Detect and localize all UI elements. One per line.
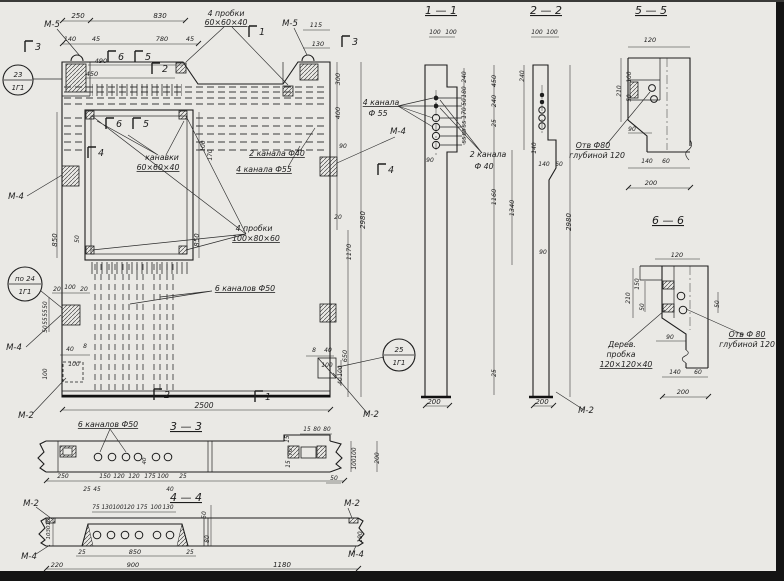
- section-flag-number: 3: [352, 37, 358, 48]
- section-title-4-4: 4 — 4: [170, 491, 202, 504]
- dim-label: 25: [83, 487, 91, 493]
- dim-label: 100: [352, 447, 358, 458]
- mark-ref-label: М-2: [23, 499, 39, 509]
- dim-label: 100: [201, 140, 207, 151]
- dim-label: 100: [352, 458, 358, 469]
- annotation: 60×60×40: [205, 18, 248, 27]
- section-flag-number: 6: [116, 119, 122, 130]
- dim-label: 25: [491, 369, 498, 377]
- annotation: пробка: [606, 350, 635, 359]
- dim-label: 650: [341, 350, 349, 362]
- mark-ref-label: М-2: [344, 499, 360, 509]
- annotation: 6 каналов Ф50: [78, 420, 138, 429]
- dim-label: 120: [113, 473, 125, 480]
- section-flag-number: 2: [164, 390, 170, 401]
- dim-label: 900: [127, 561, 139, 569]
- rib-band: [88, 262, 190, 274]
- mark-ref-label: М-2: [18, 411, 34, 421]
- dim-label: 100: [43, 368, 49, 379]
- dim-label: 40: [166, 487, 174, 493]
- dim-label: 80: [204, 535, 211, 543]
- dim-label: 100: [112, 505, 123, 511]
- mark-ref-label: М-4: [21, 552, 37, 562]
- dim-label: 100: [429, 29, 441, 36]
- dim-label: 1180: [273, 561, 291, 569]
- dim-label: 140: [538, 161, 550, 168]
- dim-label: 100: [338, 365, 344, 376]
- dim-label: 50: [74, 235, 81, 243]
- section-flag-number: 1: [265, 392, 271, 403]
- dim-label: 90: [539, 249, 547, 256]
- annotation: Ф 55: [368, 109, 387, 118]
- dim-label: 45: [186, 35, 194, 43]
- annotation: 2 канала: [470, 150, 507, 159]
- dim-label: 50: [462, 98, 468, 106]
- dim-label: 20: [53, 286, 61, 293]
- mark-top: 23: [14, 71, 23, 79]
- dim-label: 55: [43, 309, 49, 317]
- dim-label: 2500: [194, 401, 213, 410]
- dim-label: 240: [519, 70, 526, 82]
- mark-ref-label: М-2: [578, 406, 594, 416]
- dim-label: 170: [461, 107, 468, 119]
- dim-label: 25: [491, 119, 498, 127]
- dim-label: 10: [46, 532, 52, 539]
- section-flag-number: 4: [98, 148, 104, 159]
- dim-label: 150: [634, 278, 641, 290]
- mark-ref-label: М-4: [348, 550, 364, 560]
- dim-label: 90: [426, 157, 434, 164]
- dim-label: 780: [156, 35, 168, 43]
- dim-label: 100: [150, 505, 161, 511]
- dim-label: 150: [99, 473, 111, 480]
- dim-label: 60: [555, 161, 563, 168]
- dim-label: 40: [66, 346, 74, 353]
- dim-label: 200: [677, 388, 689, 396]
- dim-label: 450: [86, 70, 98, 78]
- dim-label: 210: [625, 292, 632, 304]
- annotation: 6 каналов Ф50: [215, 284, 275, 293]
- dim-label: 250: [57, 473, 69, 480]
- section-title-5-5: 5 — 5: [635, 4, 667, 17]
- dim-label: 180: [461, 86, 468, 98]
- annotation: Дерев.: [607, 340, 636, 349]
- dim-label: 90: [666, 334, 674, 341]
- dim-label: 850: [51, 233, 59, 247]
- dim-label: 200: [645, 179, 657, 187]
- rib-band: [92, 84, 182, 96]
- annotation: глубиной 120: [719, 340, 775, 349]
- dim-label: 8: [83, 343, 87, 350]
- mark-ref-label: М-4: [390, 127, 406, 137]
- annotation: глубиной 120: [569, 151, 625, 160]
- mark-top: по 24: [15, 275, 35, 283]
- dim-label: 15: [303, 427, 311, 433]
- dim-label: 40: [338, 377, 344, 385]
- dim-label: 100: [445, 29, 457, 36]
- mark-bottom: 1Г1: [12, 84, 25, 92]
- dim-label: 15: [286, 460, 292, 468]
- mark-bottom: 1Г1: [19, 288, 32, 296]
- dim-label: 1160: [490, 189, 498, 206]
- dim-label: 30: [46, 525, 52, 532]
- annotation: 60×60×40: [137, 163, 180, 172]
- dim-label: 850: [129, 548, 141, 556]
- dim-label: 100: [627, 71, 633, 82]
- mark-ref-label: М-4: [8, 192, 24, 202]
- dim-label: 40: [142, 457, 148, 464]
- dim-label: 90: [339, 143, 347, 150]
- dim-label: 100: [68, 361, 80, 368]
- dim-label: 250: [71, 12, 85, 20]
- dim-label: 130: [312, 40, 324, 48]
- dim-label: 100: [64, 284, 76, 291]
- annotation: 4 канала Ф55: [236, 165, 292, 174]
- annotation: 4 пробки: [236, 224, 273, 233]
- annotation: 2 канала Ф40: [249, 149, 305, 158]
- section-flag-number: 4: [388, 165, 394, 176]
- dim-label: 25: [179, 474, 187, 480]
- annotation: Отв Ф80: [576, 141, 610, 150]
- section-title-1-1: 1 — 1: [425, 4, 457, 17]
- annotation: 4 канала: [363, 98, 400, 107]
- dim-label: 60: [662, 158, 670, 165]
- dim-label: 200: [535, 398, 549, 406]
- dim-label: 55: [462, 128, 468, 135]
- dim-label: 240: [461, 71, 468, 83]
- section-title-3-3: 3 — 3: [170, 420, 202, 433]
- dim-label: 10: [46, 518, 52, 525]
- annotation: Ф 40: [474, 162, 493, 171]
- annotation: канавки: [145, 153, 179, 162]
- section-title-6-6: 6 — 6: [652, 214, 684, 227]
- section-flag-number: 5: [145, 52, 151, 63]
- mark-bottom: 1Г1: [393, 359, 406, 367]
- mark-ref-label: М-2: [363, 410, 379, 420]
- dim-label: 450: [490, 75, 498, 87]
- dim-label: 175: [136, 505, 147, 511]
- dim-label: 75: [92, 505, 100, 511]
- dim-label: 40: [324, 347, 332, 354]
- section-title-2-2: 2 — 2: [530, 4, 562, 17]
- dim-label: 1170: [345, 244, 353, 261]
- mark-ref-label: М-5: [282, 19, 298, 29]
- mark-ref-label: М-5: [44, 20, 60, 30]
- dim-label: 140: [669, 369, 681, 376]
- dim-label: 120: [123, 505, 134, 511]
- dim-label: 1340: [508, 200, 516, 217]
- dim-label: 2980: [359, 211, 367, 229]
- dim-label: 240: [490, 95, 498, 107]
- annotation: 100×80×60: [232, 234, 280, 243]
- dim-label: 115: [310, 21, 322, 29]
- dim-label: 50: [627, 94, 633, 102]
- dim-label: 80: [313, 427, 321, 433]
- dim-label: 100: [157, 473, 169, 480]
- annotation: 120×120×40: [600, 360, 653, 369]
- mark-top: 25: [395, 346, 404, 354]
- dim-label: 400: [334, 107, 342, 119]
- annotation: Отв Ф 80: [729, 330, 766, 339]
- dim-label: 120: [671, 251, 683, 259]
- dim-label: 130: [101, 505, 112, 511]
- dim-label: 25: [78, 550, 86, 556]
- dim-label: 140: [64, 35, 76, 43]
- dim-label: 100: [546, 29, 558, 36]
- annotation: 4 пробки: [208, 9, 245, 18]
- dim-label: 130: [162, 505, 173, 511]
- dim-label: 50: [43, 301, 49, 309]
- dim-label: 25: [186, 550, 194, 556]
- dim-label: 2980: [565, 213, 573, 231]
- mark-ref-label: М-4: [6, 343, 22, 353]
- section-flag-number: 3: [35, 42, 41, 53]
- dim-label: 175: [144, 473, 156, 480]
- dim-label: 50: [330, 475, 338, 482]
- dim-label: 200: [427, 398, 441, 406]
- dim-label: 20: [80, 286, 88, 293]
- dim-label: 220: [51, 561, 63, 569]
- dim-label: 55: [43, 317, 49, 325]
- dim-label: 50: [201, 511, 208, 519]
- dim-label: 830: [153, 12, 167, 20]
- dim-label: 45: [93, 487, 101, 493]
- dim-label: 140: [641, 158, 653, 165]
- dim-label: 200: [374, 452, 381, 464]
- dim-label: 55: [462, 120, 468, 127]
- dim-label: 100: [321, 362, 333, 369]
- dim-label: 50: [43, 325, 49, 333]
- dim-label: 190: [357, 531, 364, 543]
- section-flag-number: 5: [143, 119, 149, 130]
- dim-label: 20: [334, 214, 342, 221]
- section-flag-number: 6: [118, 52, 124, 63]
- dim-label: 490: [95, 57, 107, 65]
- dim-label: 300: [334, 73, 342, 85]
- dim-label: 8: [312, 347, 316, 354]
- section-flag-number: 1: [259, 27, 265, 38]
- dim-label: 120: [128, 473, 140, 480]
- dim-label: 100: [531, 29, 543, 36]
- dim-label: 210: [616, 85, 623, 97]
- dim-label: 170: [208, 149, 214, 160]
- dim-label: 50: [640, 303, 646, 311]
- dim-label: 55: [462, 136, 468, 143]
- dim-label: 140: [531, 142, 538, 154]
- dim-label: 45: [92, 35, 100, 43]
- dim-label: 850: [193, 233, 201, 247]
- section-flag-number: 2: [162, 64, 168, 75]
- dim-label: 15: [285, 435, 291, 443]
- dim-label: 120: [644, 36, 656, 44]
- dim-label: 60: [694, 369, 702, 376]
- dim-label: 50: [715, 300, 721, 308]
- dim-label: 70: [288, 448, 294, 456]
- dim-label: 90: [628, 126, 636, 133]
- drawing-sheet: 23 1Г1 по 24 1Г1 25 1Г1 331122656544 1 —…: [0, 0, 784, 581]
- blueprint-svg: 23 1Г1 по 24 1Г1 25 1Г1 331122656544 1 —…: [0, 0, 784, 581]
- dim-label: 80: [323, 427, 331, 433]
